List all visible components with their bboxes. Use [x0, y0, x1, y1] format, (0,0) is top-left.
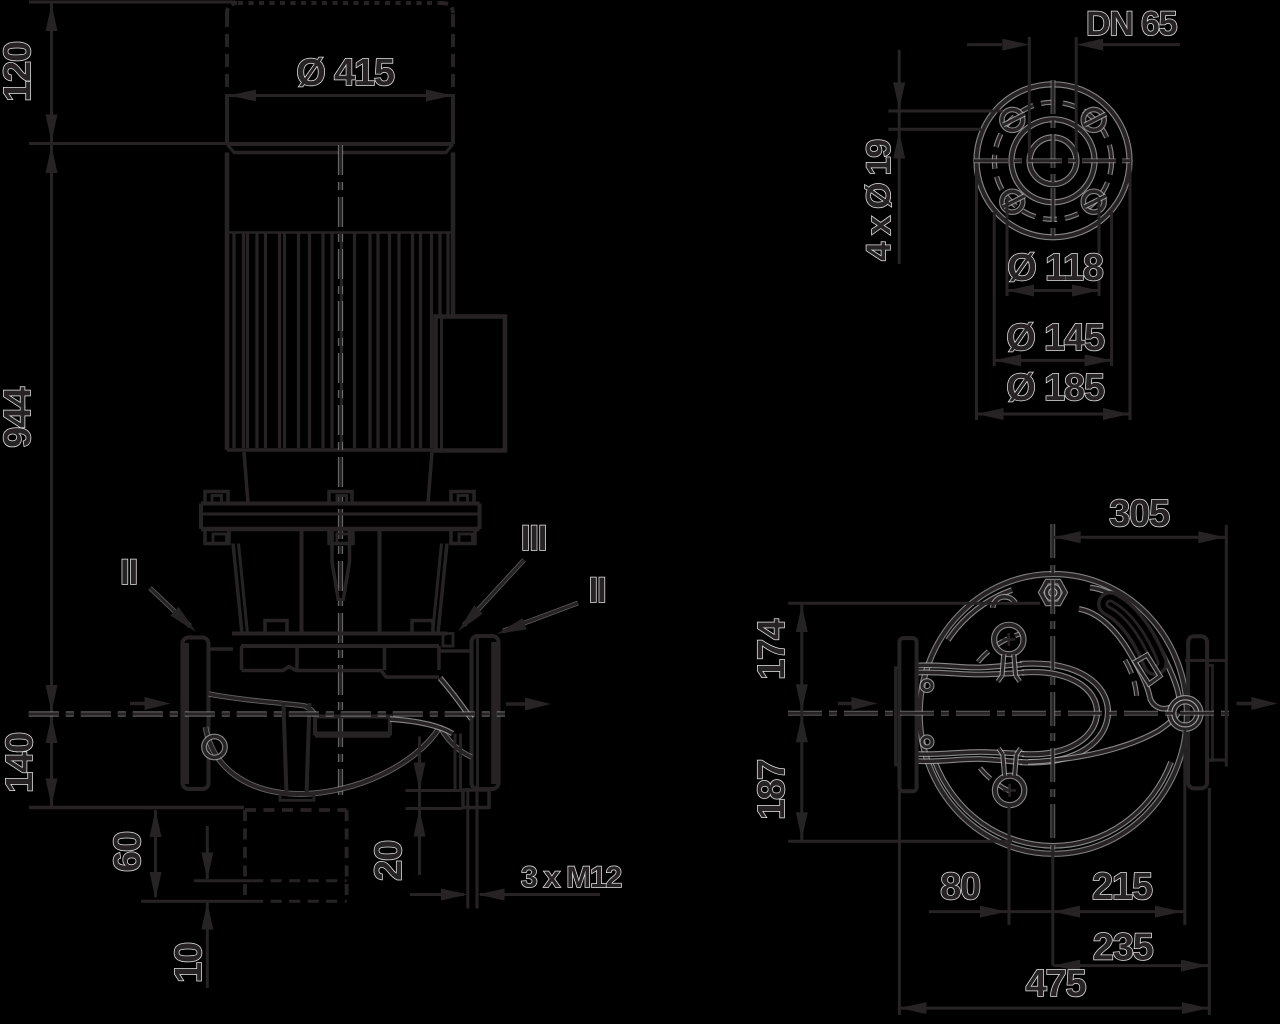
svg-text:60: 60	[107, 832, 149, 872]
svg-text:235: 235	[1093, 927, 1154, 969]
svg-text:187: 187	[751, 760, 793, 820]
svg-text:140: 140	[0, 733, 41, 793]
svg-text:10: 10	[168, 943, 210, 983]
svg-text:4 x Ø 19: 4 x Ø 19	[860, 140, 898, 261]
svg-text:944: 944	[0, 387, 39, 448]
svg-text:III: III	[521, 519, 547, 558]
svg-text:II: II	[120, 553, 137, 592]
svg-text:3 x M12: 3 x M12	[521, 861, 622, 894]
svg-text:305: 305	[1109, 493, 1170, 535]
svg-text:Ø 118: Ø 118	[1007, 247, 1102, 289]
svg-text:II: II	[588, 571, 605, 610]
svg-text:20: 20	[368, 841, 410, 881]
svg-text:475: 475	[1026, 963, 1087, 1005]
svg-text:Ø 415: Ø 415	[296, 52, 395, 94]
svg-text:Ø 145: Ø 145	[1006, 317, 1105, 359]
svg-text:80: 80	[940, 866, 980, 908]
svg-text:174: 174	[751, 619, 793, 680]
svg-text:120: 120	[0, 42, 39, 102]
svg-text:215: 215	[1092, 866, 1153, 908]
svg-text:DN 65: DN 65	[1086, 5, 1177, 43]
svg-text:Ø 185: Ø 185	[1006, 367, 1105, 409]
